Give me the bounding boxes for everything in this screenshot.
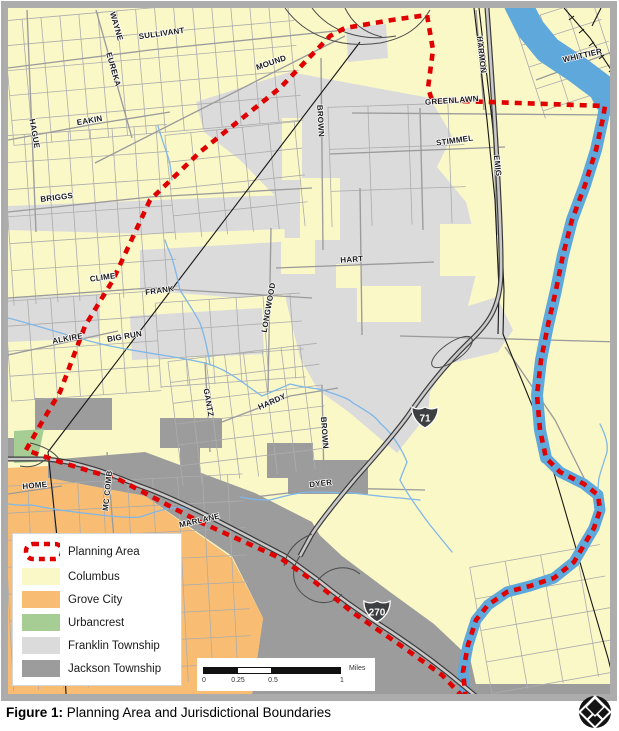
figure-title: Planning Area and Jurisdictional Boundar… — [67, 705, 331, 720]
urbancrest-swatch — [22, 614, 60, 631]
legend-label-columbus: Columbus — [68, 571, 120, 583]
legend-item-columbus: Columbus — [22, 565, 181, 588]
jackson-township-swatch — [22, 660, 60, 677]
columbus-swatch — [22, 568, 60, 585]
scale-tick-025: 0.25 — [231, 677, 245, 684]
figure-page: 71270 WAYNESULLIVANTEUREKAMOUNDHAGUEEAKI… — [0, 0, 619, 731]
scale-tick-0: 0 — [202, 677, 206, 684]
legend-label-grove-city: Grove City — [68, 594, 122, 606]
scale-tick-05: 0.5 — [268, 677, 278, 684]
scale-bar-segments: Miles — [203, 667, 341, 674]
grove-city-swatch — [22, 591, 60, 608]
figure-number: Figure 1: — [6, 705, 63, 720]
scale-unit: Miles — [349, 665, 365, 672]
legend: Planning Area Columbus Grove City Urbanc… — [12, 533, 182, 686]
organization-logo — [577, 693, 613, 730]
legend-label-planning-area: Planning Area — [68, 546, 140, 558]
franklin-township-swatch — [22, 637, 60, 654]
legend-label-franklin-township: Franklin Township — [68, 640, 160, 652]
street-label-hart: HART — [340, 254, 364, 265]
street-label-brown: BROWN — [315, 105, 326, 138]
legend-label-jackson-township: Jackson Township — [68, 663, 161, 675]
legend-item-urbancrest: Urbancrest — [22, 611, 181, 634]
svg-text:270: 270 — [369, 608, 386, 619]
legend-item-jackson-township: Jackson Township — [22, 657, 181, 680]
legend-label-urbancrest: Urbancrest — [68, 617, 124, 629]
scale-ticks: 0 0.25 0.5 1 — [203, 677, 363, 687]
scale-bar: Miles 0 0.25 0.5 1 — [197, 658, 375, 691]
legend-item-franklin-township: Franklin Township — [22, 634, 181, 657]
legend-item-planning-area: Planning Area — [22, 539, 181, 565]
svg-text:71: 71 — [419, 414, 431, 425]
planning-area-swatch — [22, 540, 60, 564]
scale-tick-1: 1 — [340, 677, 344, 684]
legend-item-grove-city: Grove City — [22, 588, 181, 611]
figure-caption: Figure 1: Planning Area and Jurisdiction… — [6, 705, 331, 720]
